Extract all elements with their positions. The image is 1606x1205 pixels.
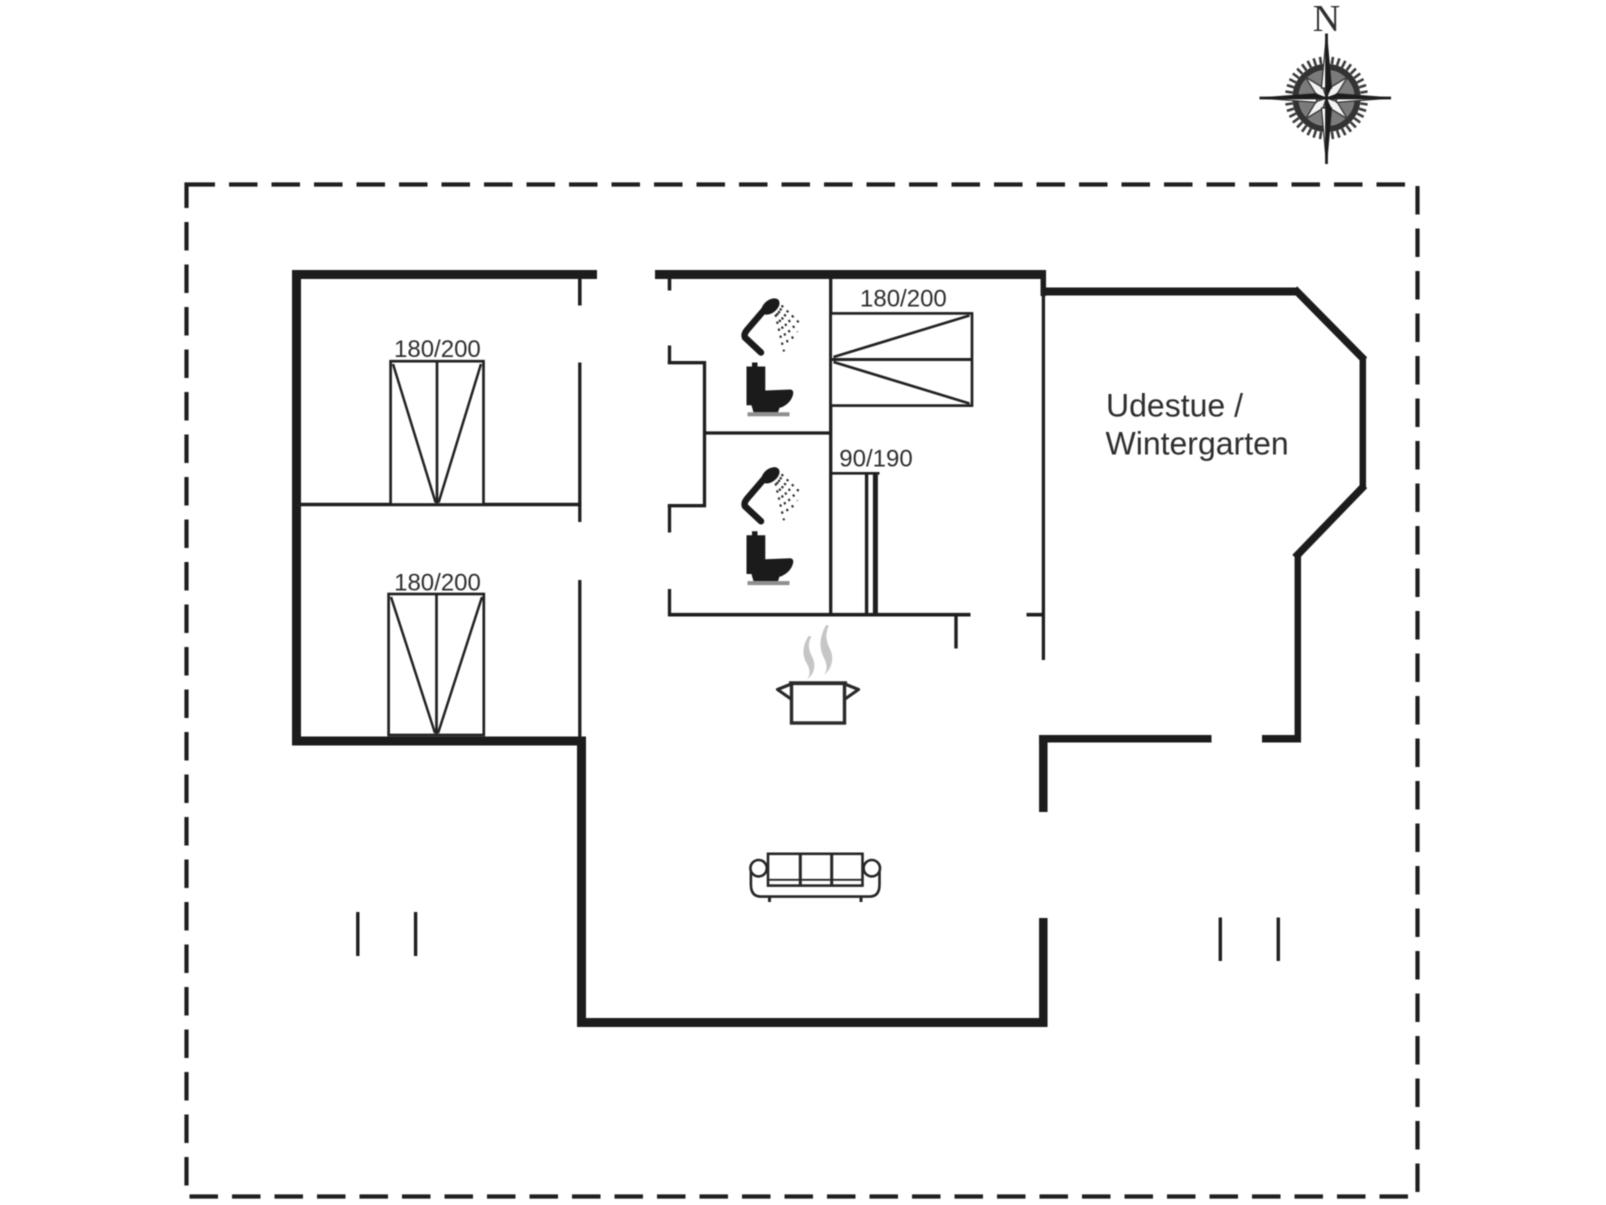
svg-text:90/190: 90/190 xyxy=(839,446,912,473)
svg-text:Wintergarten: Wintergarten xyxy=(1106,426,1289,462)
svg-text:180/200: 180/200 xyxy=(394,570,481,597)
svg-text:N: N xyxy=(1313,0,1340,40)
svg-text:180/200: 180/200 xyxy=(394,336,481,363)
svg-text:Udestue /: Udestue / xyxy=(1106,388,1243,424)
svg-text:180/200: 180/200 xyxy=(860,286,947,313)
